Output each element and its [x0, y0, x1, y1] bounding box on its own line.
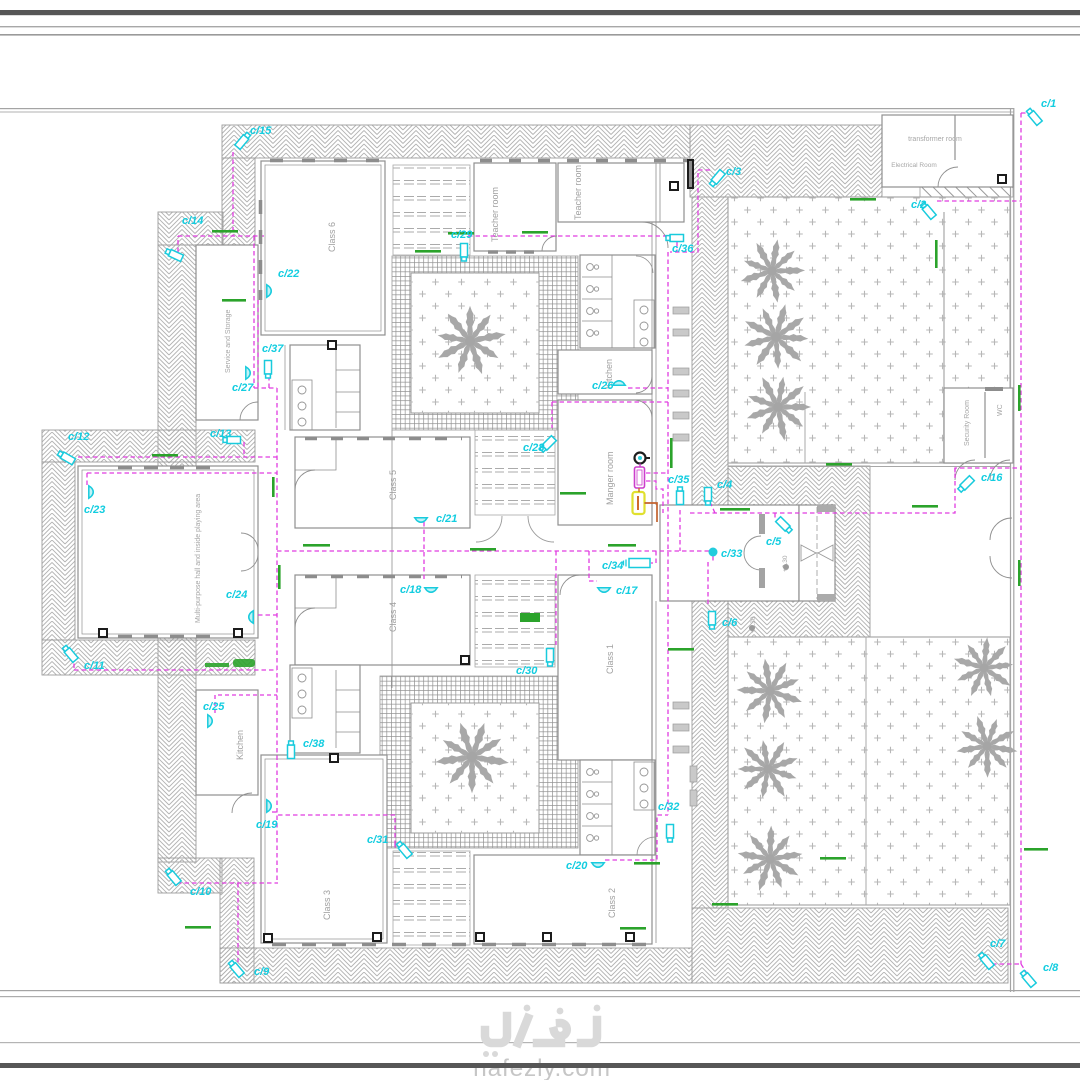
- svg-text:c/21: c/21: [436, 513, 457, 525]
- svg-text:c/12: c/12: [68, 431, 89, 443]
- svg-text:c/33: c/33: [721, 548, 742, 560]
- svg-text:c/30: c/30: [516, 665, 538, 677]
- svg-text:Security Room: Security Room: [964, 400, 971, 446]
- svg-text:c/9: c/9: [254, 966, 270, 978]
- svg-text:Manger room: Manger room: [605, 451, 615, 505]
- svg-text:Class 6: Class 6: [327, 222, 337, 252]
- svg-text:Teacher room: Teacher room: [490, 187, 500, 242]
- svg-text:c/6: c/6: [722, 617, 738, 629]
- svg-text:c/36: c/36: [672, 243, 694, 255]
- svg-text:c/5: c/5: [766, 536, 782, 548]
- svg-text:c/8: c/8: [1043, 962, 1059, 974]
- svg-text:Class 5: Class 5: [388, 470, 398, 500]
- svg-text:c/16: c/16: [981, 472, 1003, 484]
- svg-text:WC: WC: [997, 404, 1004, 416]
- svg-text:c/34: c/34: [602, 560, 623, 572]
- svg-text:c/15: c/15: [250, 125, 272, 137]
- svg-text:Electrical Room: Electrical Room: [891, 162, 937, 169]
- svg-text:c/31: c/31: [367, 834, 388, 846]
- svg-text:c/4: c/4: [717, 479, 732, 491]
- svg-text:Teacher room: Teacher room: [573, 165, 583, 220]
- svg-text:c/32: c/32: [658, 801, 679, 813]
- svg-text:c/20: c/20: [566, 860, 588, 872]
- svg-text:Class 2: Class 2: [607, 888, 617, 918]
- svg-text:Class 3: Class 3: [322, 890, 332, 920]
- svg-text:c/23: c/23: [84, 504, 105, 516]
- svg-text:c/7: c/7: [990, 938, 1006, 950]
- svg-text:Class 4: Class 4: [388, 602, 398, 632]
- svg-text:c/28: c/28: [523, 442, 545, 454]
- svg-text:Class 1: Class 1: [605, 644, 615, 674]
- svg-text:c/37: c/37: [262, 343, 284, 355]
- svg-text:Multi-purpose hall and inside: Multi-purpose hall and inside playing ar…: [195, 494, 202, 623]
- svg-text:c/24: c/24: [226, 589, 247, 601]
- svg-text:transformer room: transformer room: [908, 136, 962, 143]
- svg-text:c/35: c/35: [668, 474, 690, 486]
- svg-text:c/38: c/38: [303, 738, 325, 750]
- svg-text:Service and Storage: Service and Storage: [225, 309, 232, 373]
- svg-text:c/13: c/13: [210, 428, 231, 440]
- svg-text:c/26: c/26: [592, 380, 614, 392]
- svg-text:c/2: c/2: [911, 199, 926, 211]
- svg-text:c/18: c/18: [400, 584, 422, 596]
- svg-text:c/22: c/22: [278, 268, 299, 280]
- svg-text:c/3: c/3: [726, 166, 741, 178]
- svg-text:c/14: c/14: [182, 215, 203, 227]
- svg-text:c/17: c/17: [616, 585, 638, 597]
- svg-text:c/19: c/19: [256, 819, 278, 831]
- svg-text:Kitchen: Kitchen: [235, 730, 245, 760]
- svg-text:c/27: c/27: [232, 382, 254, 394]
- svg-text:c/29: c/29: [451, 229, 473, 241]
- svg-text:c/1: c/1: [1041, 98, 1056, 110]
- svg-text:c/10: c/10: [190, 886, 212, 898]
- svg-text:c/25: c/25: [203, 701, 225, 713]
- svg-text:c/11: c/11: [84, 660, 105, 672]
